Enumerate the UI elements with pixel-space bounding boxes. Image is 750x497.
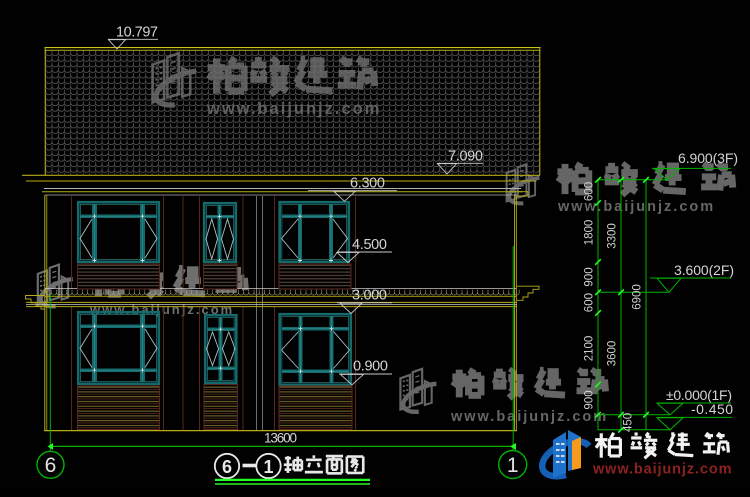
svg-text:1: 1 [507,454,519,477]
svg-text:450: 450 [623,413,635,432]
svg-text:3600: 3600 [607,341,619,367]
svg-text:1800: 1800 [584,220,596,246]
svg-text:4.500: 4.500 [352,237,387,253]
svg-text:900: 900 [584,267,596,286]
svg-text:0.900: 0.900 [353,359,388,375]
svg-text:600: 600 [584,182,596,201]
svg-text:www.baijunjz.com: www.baijunjz.com [592,462,732,478]
svg-text:600: 600 [584,293,596,312]
svg-text:6: 6 [45,454,57,477]
svg-text:www.baijunjz.com: www.baijunjz.com [557,199,715,215]
svg-text:www.baijunjz.com: www.baijunjz.com [450,409,608,425]
svg-text:3.600(2F): 3.600(2F) [674,262,734,278]
svg-text:2100: 2100 [584,336,596,362]
svg-text:6.900(3F): 6.900(3F) [678,150,738,166]
svg-text:7.090: 7.090 [448,149,483,165]
svg-text:-0.450: -0.450 [691,401,733,417]
svg-text:6.300: 6.300 [350,176,385,192]
svg-text:13600: 13600 [264,431,297,446]
svg-text:6: 6 [222,457,232,477]
svg-text:10.797: 10.797 [116,25,158,41]
svg-text:3.000: 3.000 [352,288,387,304]
svg-text:6900: 6900 [632,284,644,310]
svg-text:1: 1 [263,457,273,477]
svg-text:900: 900 [584,390,596,409]
svg-text:3300: 3300 [607,223,619,249]
